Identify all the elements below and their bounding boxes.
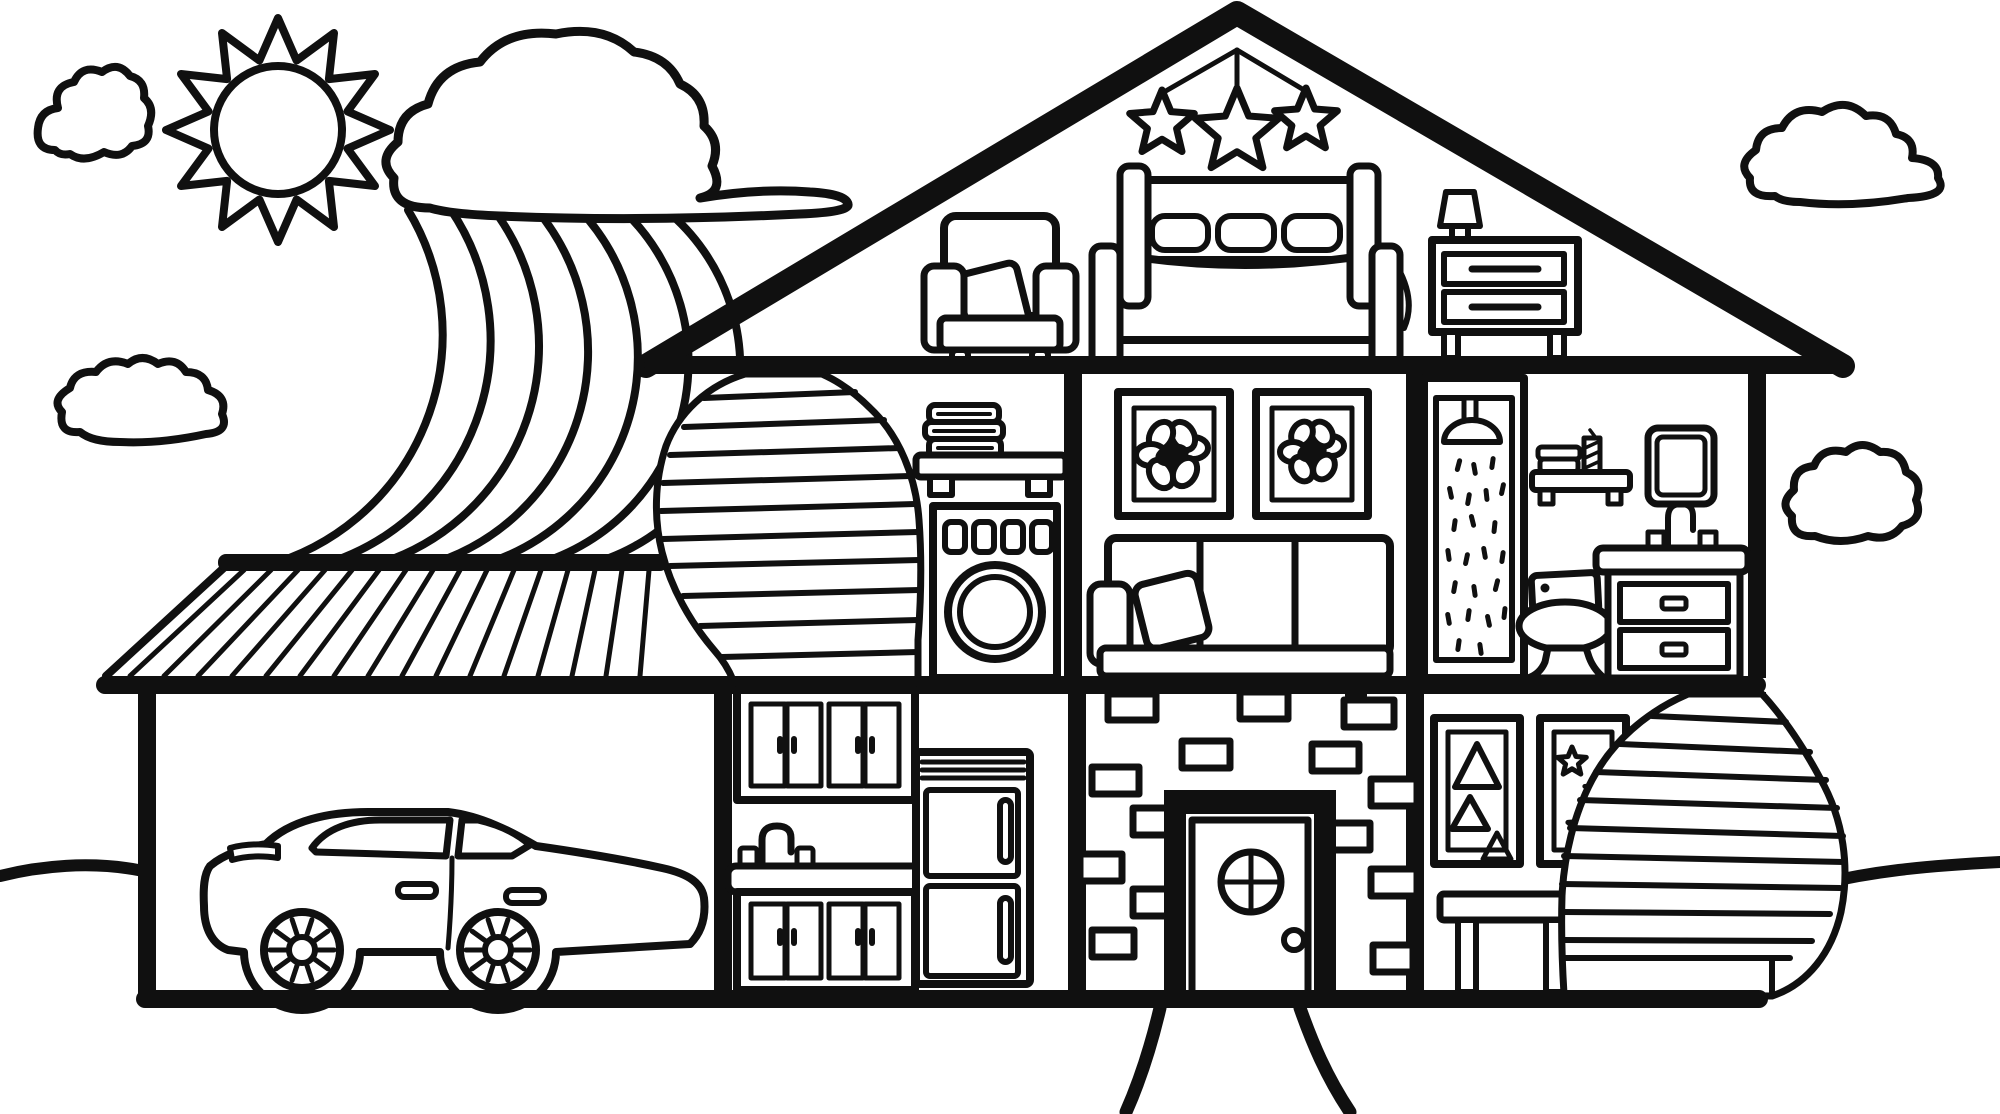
top-left-cloud (38, 67, 152, 159)
bathroom-shelf (1532, 430, 1630, 504)
hanging-star-center (1195, 88, 1279, 168)
triangle-picture (1434, 718, 1520, 864)
top-right-cloud (1744, 105, 1940, 204)
living-room (1090, 392, 1390, 696)
bed-post (1092, 246, 1120, 370)
door-knob (1284, 930, 1304, 950)
bed-post (1372, 246, 1400, 370)
kitchen-sink (728, 826, 920, 892)
fridge-handle (1000, 800, 1011, 862)
car-front-wheel (460, 912, 536, 988)
washing-machine (933, 506, 1057, 678)
shower-head (1444, 420, 1500, 442)
shelf-leg (930, 477, 952, 495)
laundry-shelf (916, 455, 1066, 477)
wall-kitchen-entry (1068, 692, 1086, 994)
sink-vanity (1596, 504, 1748, 678)
front-door (1164, 790, 1336, 1002)
kitchen (728, 690, 1030, 990)
bed-post (1120, 166, 1148, 306)
car-taillight (230, 844, 278, 860)
mid-left-cloud (58, 358, 225, 442)
car-front-window (458, 820, 530, 856)
car-door-handle (506, 890, 544, 903)
hanging-star-left (1130, 90, 1195, 152)
walkway-left-curve (1126, 1008, 1160, 1112)
upper-staircase (656, 374, 920, 680)
shower-stall (1424, 378, 1524, 678)
nightstand (1432, 192, 1578, 358)
laundry-room (916, 405, 1066, 678)
wall-garage-kitchen (714, 692, 732, 994)
sun-core (214, 66, 342, 194)
ground-line-left (0, 865, 138, 876)
sofa-pillow (1133, 571, 1211, 651)
bed-pillow (1284, 216, 1340, 250)
lamp-shade (1440, 192, 1480, 226)
wall-right-upper (1748, 366, 1766, 678)
vanity-faucet (1668, 504, 1693, 548)
car-door-handle (398, 884, 436, 897)
walkway-right-curve (1300, 1008, 1350, 1112)
wall-laundry-living (1064, 372, 1082, 678)
garage-roof (106, 554, 668, 676)
lower-cabinets (737, 892, 915, 990)
attic-floor-slab (644, 356, 1848, 374)
bed-body (1116, 254, 1374, 340)
towel (1538, 447, 1580, 459)
wall-garage-left (138, 684, 156, 1004)
bed (1092, 166, 1409, 370)
second-floor-slab (96, 676, 1766, 694)
bed-pillow (1152, 216, 1208, 250)
entry-room (1080, 692, 1417, 1002)
shelf-leg (1028, 477, 1050, 495)
mirror (1648, 428, 1714, 504)
flower-picture-2 (1256, 392, 1368, 516)
large-cloud (386, 31, 848, 218)
bathroom (1424, 378, 1748, 678)
car (204, 812, 705, 1010)
bed-pillow (1218, 216, 1274, 250)
house-illustration (0, 0, 2000, 1114)
sofa (1090, 538, 1390, 696)
garage-roof-ridge (218, 554, 668, 571)
hanging-star-right (1275, 88, 1338, 148)
sofa-seat (1100, 648, 1390, 676)
right-small-cloud (1785, 445, 1918, 541)
coloring-page (0, 0, 2000, 1114)
flower-picture-1 (1118, 392, 1230, 516)
refrigerator (916, 752, 1030, 984)
sun (166, 18, 390, 242)
car-rear-wheel (264, 912, 340, 988)
ground-slab (136, 990, 1768, 1008)
attic-bedroom (924, 50, 1578, 370)
toilet-pedestal (1528, 648, 1604, 678)
armchair (924, 216, 1076, 368)
toilet (1519, 572, 1611, 678)
upper-cabinets (737, 690, 915, 800)
fridge-handle (1000, 898, 1011, 962)
